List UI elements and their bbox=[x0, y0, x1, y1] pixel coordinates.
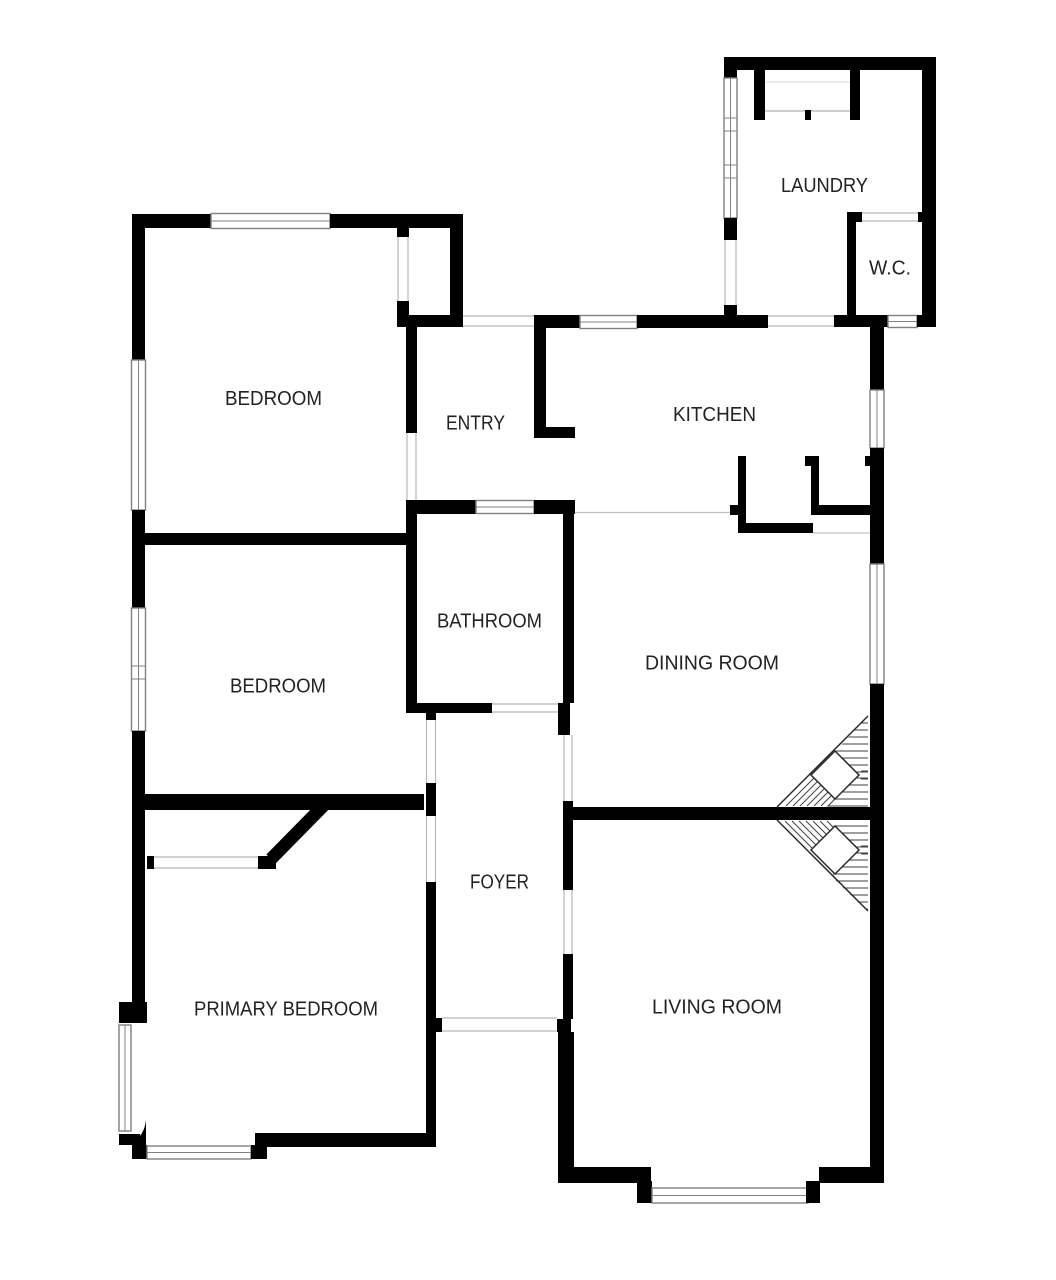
svg-text:KITCHEN: KITCHEN bbox=[673, 404, 756, 426]
svg-text:BEDROOM: BEDROOM bbox=[230, 676, 326, 698]
svg-text:BEDROOM: BEDROOM bbox=[225, 388, 322, 410]
svg-text:FOYER: FOYER bbox=[470, 872, 529, 894]
svg-text:LAUNDRY: LAUNDRY bbox=[781, 175, 868, 197]
svg-text:BATHROOM: BATHROOM bbox=[437, 611, 542, 633]
svg-text:ENTRY: ENTRY bbox=[446, 413, 505, 435]
svg-text:LIVING ROOM: LIVING ROOM bbox=[652, 997, 782, 1019]
svg-text:DINING ROOM: DINING ROOM bbox=[645, 653, 779, 675]
svg-text:PRIMARY BEDROOM: PRIMARY BEDROOM bbox=[194, 999, 378, 1021]
svg-text:W.C.: W.C. bbox=[869, 258, 911, 280]
